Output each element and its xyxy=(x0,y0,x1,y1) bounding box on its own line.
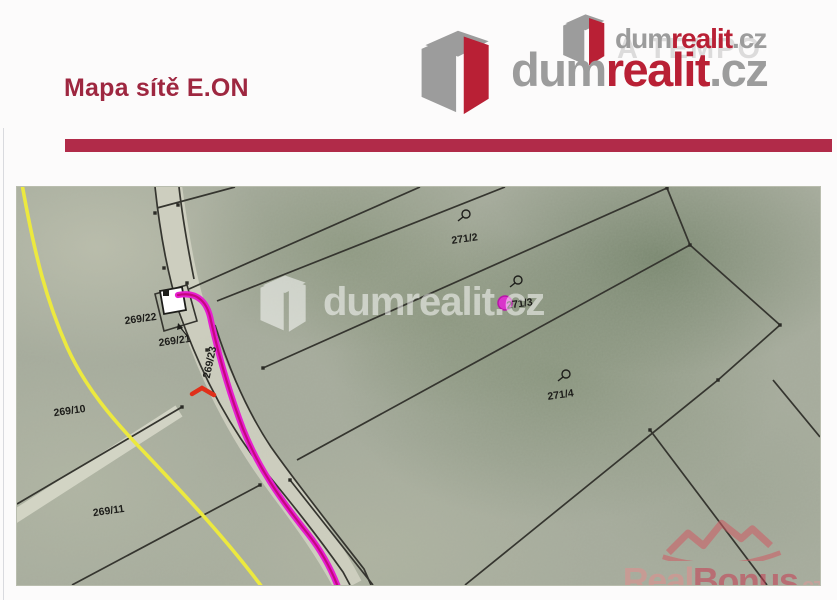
dumrealit-logo-main: dumrealit.cz xyxy=(417,24,767,116)
document-page: Mapa sítě E.ON A TEMPO dumrealit.cz dumr… xyxy=(0,0,837,600)
page-edge-line xyxy=(3,128,4,600)
cadastral-map: 271/2 271/3 271/4 269/10 269/11 269/22 2… xyxy=(17,187,820,585)
header-divider-bar xyxy=(65,139,832,152)
logo-realit: realit xyxy=(606,43,709,96)
logo-tld: .cz xyxy=(709,43,767,96)
building-symbol-dot xyxy=(163,290,169,296)
map-overlay: 271/2 271/3 271/4 269/10 269/11 269/22 2… xyxy=(17,187,820,585)
dumrealit-box-icon xyxy=(417,24,499,116)
dumrealit-logo-text: dumrealit.cz xyxy=(511,24,767,116)
page-title: Mapa sítě E.ON xyxy=(64,74,249,103)
logo-dum: dum xyxy=(511,43,606,96)
aerial-texture xyxy=(17,187,820,585)
